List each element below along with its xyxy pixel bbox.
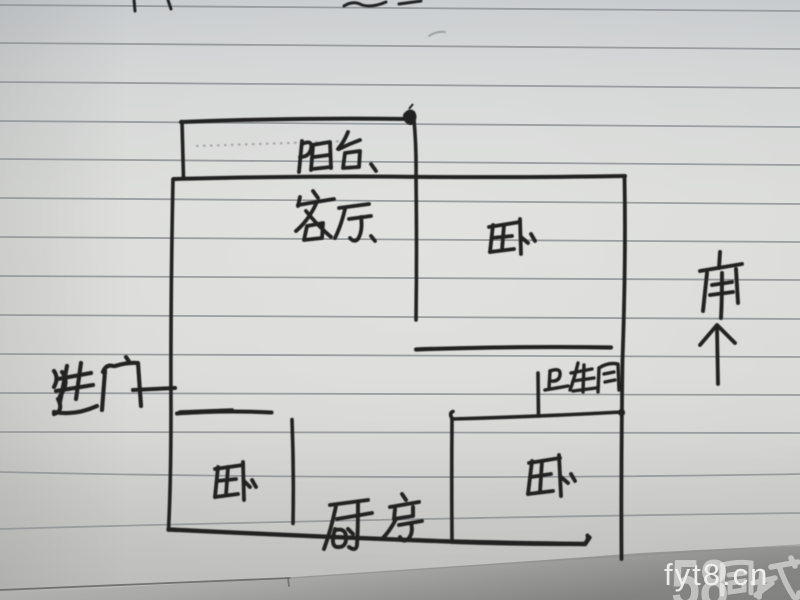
svg-text:fyt8.cn: fyt8.cn bbox=[664, 557, 769, 592]
